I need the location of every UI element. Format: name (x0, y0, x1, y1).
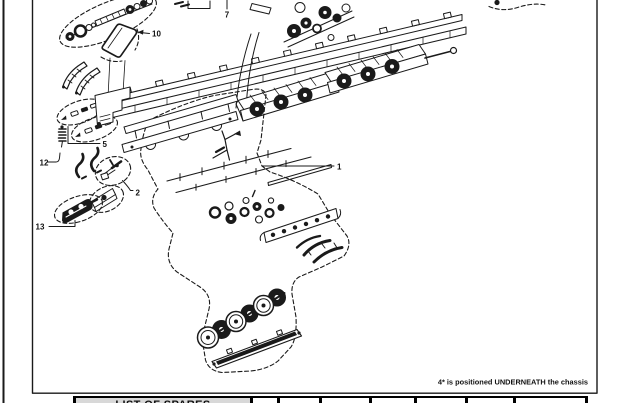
spares-table-cell (280, 398, 322, 403)
motor-part-13 (51, 189, 106, 229)
callout-12: 12 (40, 159, 49, 168)
callout-5: 5 (103, 140, 108, 149)
gear-tower (284, 3, 354, 48)
spares-table-cell (468, 398, 516, 403)
spares-table-cell (372, 398, 417, 403)
callout-7: 7 (225, 11, 230, 20)
callout-1: 1 (337, 163, 342, 172)
service-sheet-page: 1 2 5 7 10 12 13 4* is positioned UNDERN… (0, 0, 626, 403)
mounting-bracket (213, 131, 241, 161)
callout-10: 10 (152, 30, 161, 39)
cut-off-fragments (175, 0, 546, 10)
callout-2: 2 (136, 189, 141, 198)
brake-rigging-rods (167, 149, 332, 193)
list-of-spares-table: LIST OF SPARES (73, 396, 588, 403)
spares-table-header-cell: LIST OF SPARES (73, 398, 253, 403)
spares-table-cell (253, 398, 280, 403)
bogie-side-frame (122, 95, 238, 153)
callout-13: 13 (36, 223, 45, 232)
brake-pull-hooks (297, 236, 342, 262)
spares-table-cell (516, 398, 588, 403)
spares-table-cell (322, 398, 372, 403)
exploded-diagram: 1 2 5 7 10 12 13 4* is positioned UNDERN… (0, 0, 626, 403)
coupler-pocket (85, 180, 128, 217)
spring-part-12 (59, 125, 67, 147)
gear-cluster (210, 191, 285, 225)
underneath-note: 4* is positioned UNDERNEATH the chassis (438, 378, 588, 387)
brake-shoe-parts (62, 62, 100, 95)
spares-table-cell (417, 398, 468, 403)
coupling-hooks (76, 148, 101, 179)
